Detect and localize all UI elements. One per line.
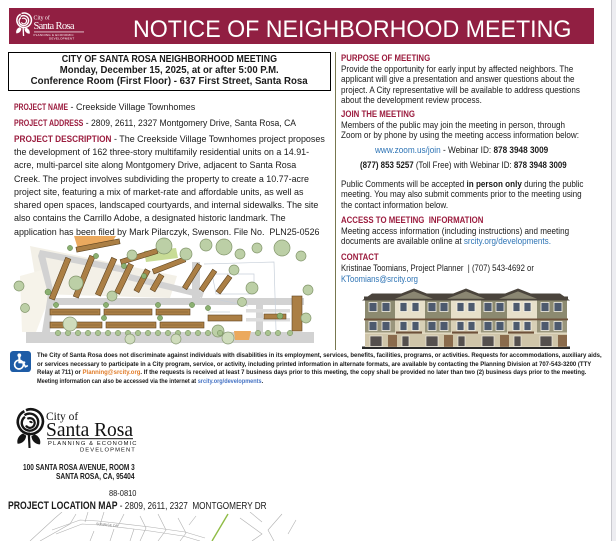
svg-text:DEVELOPMENT: DEVELOPMENT xyxy=(49,37,74,41)
svg-text:DEVELOPMENT: DEVELOPMENT xyxy=(80,448,136,454)
svg-text:Santa Rosa: Santa Rosa xyxy=(34,21,75,32)
svg-text:PLANNING & ECONOMIC: PLANNING & ECONOMIC xyxy=(48,441,138,447)
svg-text:Santa Rosa: Santa Rosa xyxy=(46,420,133,441)
